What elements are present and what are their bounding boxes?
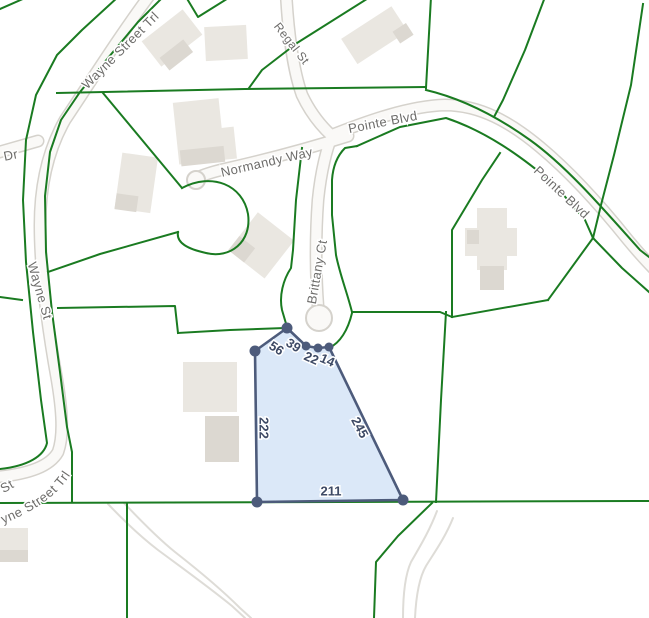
dimension-label-left: 222 bbox=[257, 417, 272, 439]
building bbox=[173, 97, 237, 167]
parcel-vertex[interactable] bbox=[250, 346, 261, 357]
building bbox=[114, 153, 158, 214]
dimension-label-bottom: 211 bbox=[321, 483, 342, 498]
cul-de-sac-normandy bbox=[187, 171, 205, 189]
road-wayne-street-trl bbox=[0, 0, 152, 477]
map-frame: Wayne Street Trl Regal St Pointe Blvd No… bbox=[0, 0, 649, 618]
building bbox=[465, 208, 517, 290]
building bbox=[183, 362, 239, 462]
building bbox=[341, 5, 413, 70]
cul-de-sac-brittany bbox=[306, 305, 332, 331]
street-label-brittany-ct: Brittany Ct bbox=[304, 238, 330, 305]
building bbox=[0, 528, 28, 562]
trails bbox=[108, 503, 453, 618]
parcel-vertex[interactable] bbox=[398, 495, 409, 506]
parcel-vertex[interactable] bbox=[282, 323, 293, 334]
map-canvas[interactable]: Wayne Street Trl Regal St Pointe Blvd No… bbox=[0, 0, 649, 618]
building bbox=[204, 25, 248, 61]
parcel-vertex[interactable] bbox=[252, 497, 263, 508]
